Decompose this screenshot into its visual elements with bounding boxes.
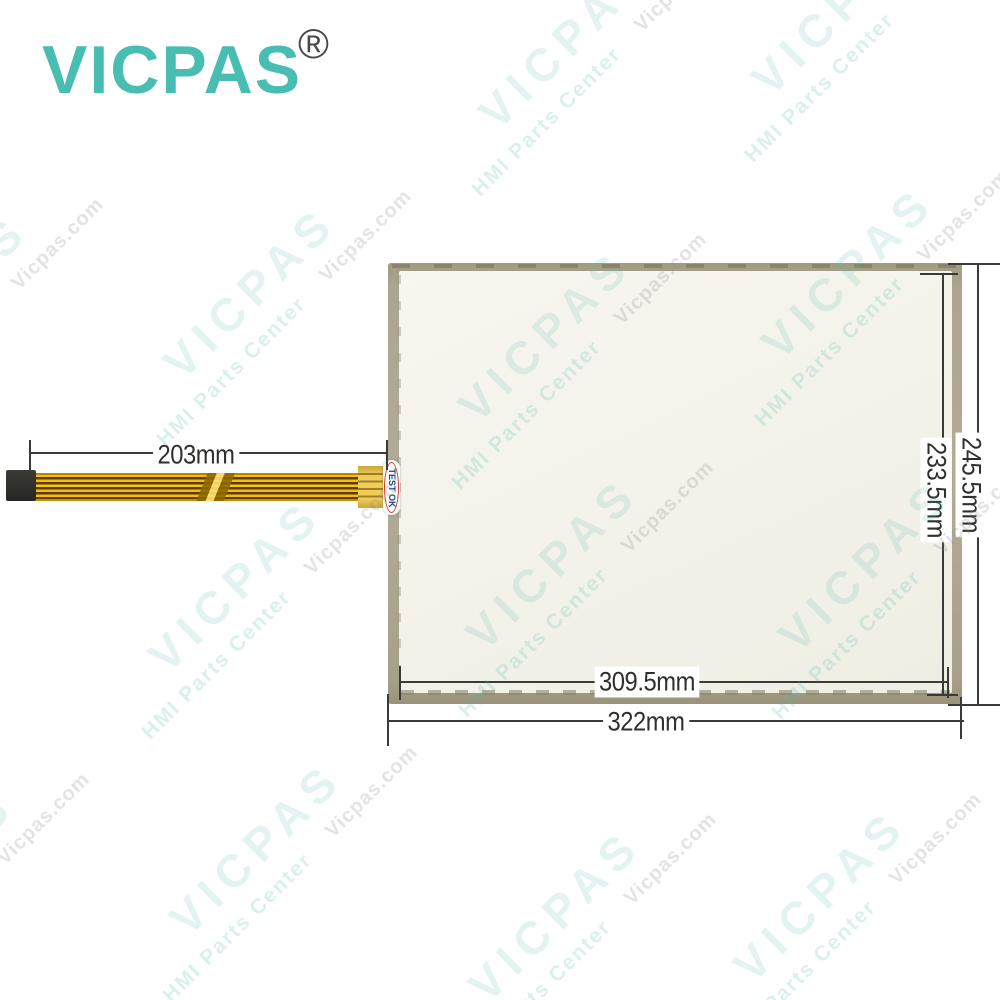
cable-connector xyxy=(6,470,36,501)
watermark-brand-text: VICPAS xyxy=(152,194,347,389)
watermark-domain-text: Vicpas.com xyxy=(620,808,722,910)
dim-tick xyxy=(927,694,958,696)
touch-panel-frame xyxy=(388,263,962,704)
watermark-domain-text: Vicpas.com xyxy=(903,0,1000,3)
vicpas-logo-text: VICPAS xyxy=(42,32,302,108)
watermark-subtitle-text: HMI Parts Center xyxy=(152,292,311,451)
watermark-domain-text: Vicpas.com xyxy=(321,741,423,843)
dim-tick xyxy=(948,704,1000,706)
vicpas-logo: VICPAS ® xyxy=(42,36,302,104)
watermark-domain-text: Vicpas.com xyxy=(7,193,109,295)
watermark-domain-text: Vicpas.com xyxy=(913,165,1000,267)
watermark-domain-text: Vicpas.com xyxy=(885,788,987,890)
test-ok-sticker-text: TEST OK xyxy=(387,468,397,507)
dim-tick xyxy=(399,666,401,700)
touch-panel-glass xyxy=(399,271,952,693)
watermark-brand-text: VICPAS xyxy=(457,817,652,1000)
watermark-subtitle-text: HMI Parts Center xyxy=(457,915,616,1000)
watermark-brand-text: VICPAS xyxy=(740,0,935,106)
watermark-subtitle-text: HMI Parts Center xyxy=(467,42,626,201)
cable-fold-mark xyxy=(195,473,241,501)
watermark-brand-text: VICPAS xyxy=(137,487,332,682)
watermark-subtitle-text: HMI Parts Center xyxy=(722,895,881,1000)
product-image: VICPAS ® TEST OK 203mm 309.5mm 322mm 233… xyxy=(0,0,1000,1000)
dim-label-inner-width: 309.5mm xyxy=(595,666,700,697)
watermark-subtitle-text: HMI Parts Center xyxy=(740,8,899,167)
dim-tick xyxy=(920,273,958,275)
watermark-subtitle-text: HMI Parts Center xyxy=(137,585,296,744)
dim-tick xyxy=(29,440,31,470)
watermark-subtitle-text: HMI Parts Center xyxy=(0,300,4,459)
dim-label-outer-width: 322mm xyxy=(603,706,689,737)
dim-label-outer-height: 245.5mm xyxy=(955,433,986,538)
watermark-brand-text: VICPAS xyxy=(158,750,353,945)
dim-label-cable-length: 203mm xyxy=(153,439,239,470)
dim-tick xyxy=(386,440,388,470)
watermark-domain-text: Vicpas.com xyxy=(0,768,95,870)
dim-tick xyxy=(948,263,1000,265)
watermark-brand-text: VICPAS xyxy=(0,202,40,397)
watermark-brand-text: VICPAS xyxy=(467,0,662,140)
watermark-subtitle-text: HMI Parts Center xyxy=(158,848,317,1000)
watermark-brand-text: VICPAS xyxy=(722,797,917,992)
dim-label-inner-height: 233.5mm xyxy=(920,438,951,543)
watermark-brand-text: VICPAS xyxy=(0,777,26,972)
registered-trademark-icon: ® xyxy=(298,20,329,68)
dim-tick xyxy=(387,694,389,746)
watermark-domain-text: Vicpas.com xyxy=(630,0,732,37)
